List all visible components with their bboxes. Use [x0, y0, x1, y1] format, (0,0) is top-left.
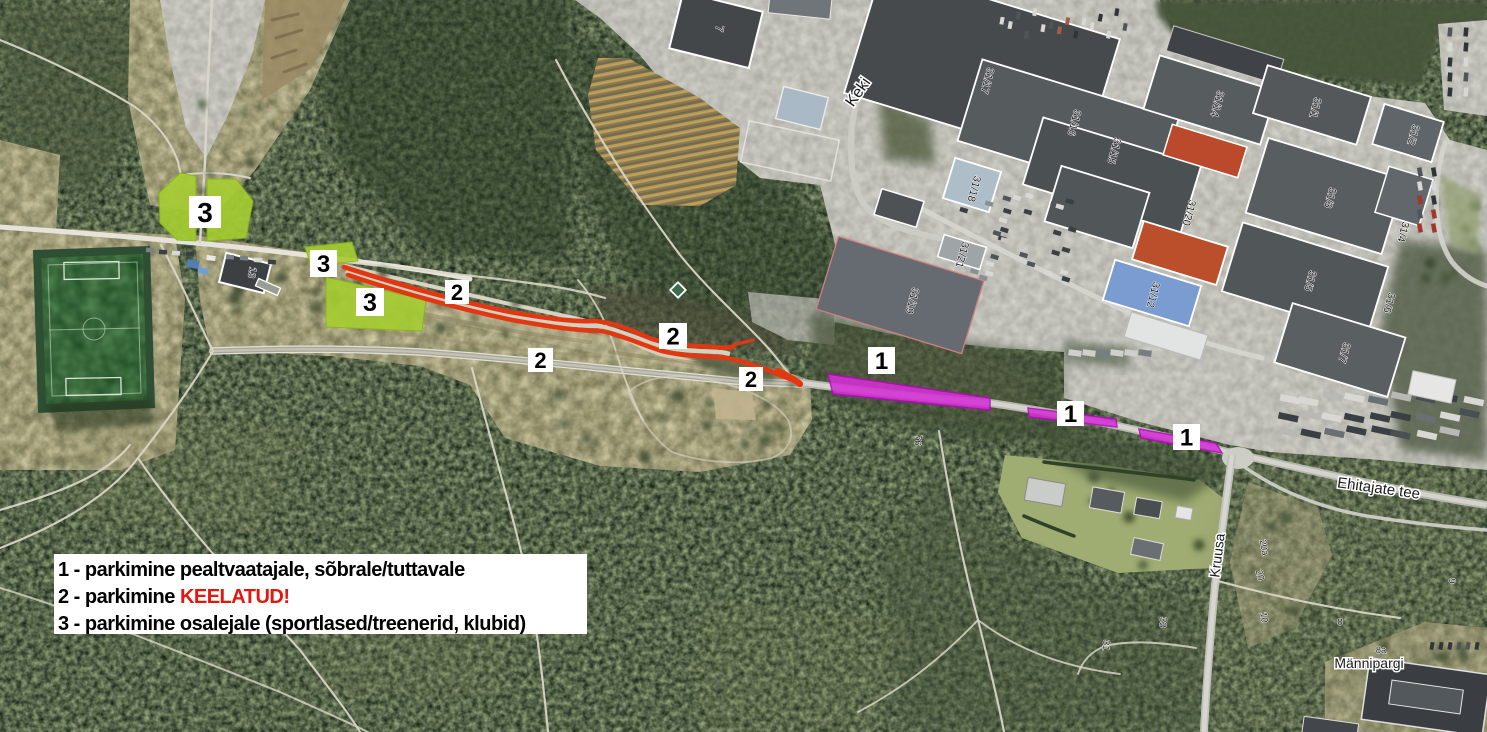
svg-text:2: 2: [666, 324, 679, 351]
svg-text:1: 1: [1064, 401, 1077, 428]
svg-text:3: 3: [363, 289, 377, 317]
svg-text:8: 8: [1337, 617, 1342, 628]
svg-text:31: 31: [1100, 639, 1112, 650]
svg-text:8a: 8a: [1376, 645, 1387, 656]
svg-text:33: 33: [1157, 616, 1169, 627]
svg-text:1 - parkimine pealtvaatajale,: 1 - parkimine pealtvaatajale, sõbrale/tu…: [58, 559, 465, 581]
svg-text:76: 76: [912, 434, 924, 445]
svg-text:2: 2: [451, 280, 463, 305]
svg-text:3 - parkimine osalejale (sport: 3 - parkimine osalejale (sportlased/tree…: [58, 613, 526, 635]
svg-text:2: 2: [745, 367, 757, 392]
svg-text:1: 1: [875, 348, 888, 375]
svg-text:3: 3: [197, 197, 213, 228]
svg-text:10: 10: [1257, 611, 1270, 623]
svg-text:9: 9: [1446, 578, 1457, 583]
svg-text:Männipargi: Männipargi: [1334, 655, 1403, 671]
svg-text:2: 2: [534, 348, 546, 373]
svg-text:1: 1: [1180, 425, 1193, 452]
svg-text:2 - parkimine KEELATUD!: 2 - parkimine KEELATUD!: [58, 586, 290, 608]
svg-text:3: 3: [317, 251, 330, 278]
